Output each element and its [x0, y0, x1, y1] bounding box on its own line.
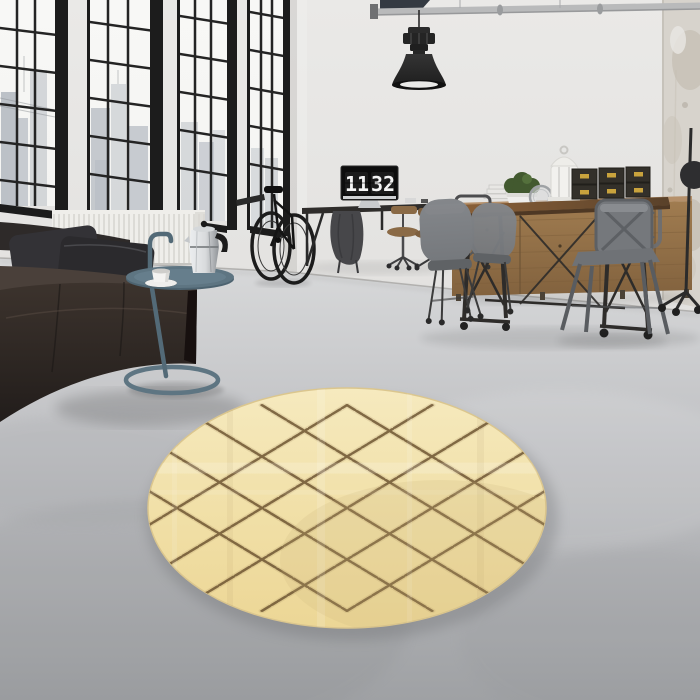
wall-corner-light: [297, 0, 307, 300]
moka-lid-knob: [201, 221, 207, 227]
clock-hours: 11: [345, 172, 369, 196]
bike-saddle: [264, 186, 283, 193]
loft-interior-photo: 11 32: [0, 0, 700, 700]
desk-object: [421, 199, 428, 203]
desk-papers: [405, 198, 416, 203]
clock-minutes: 32: [371, 172, 395, 196]
